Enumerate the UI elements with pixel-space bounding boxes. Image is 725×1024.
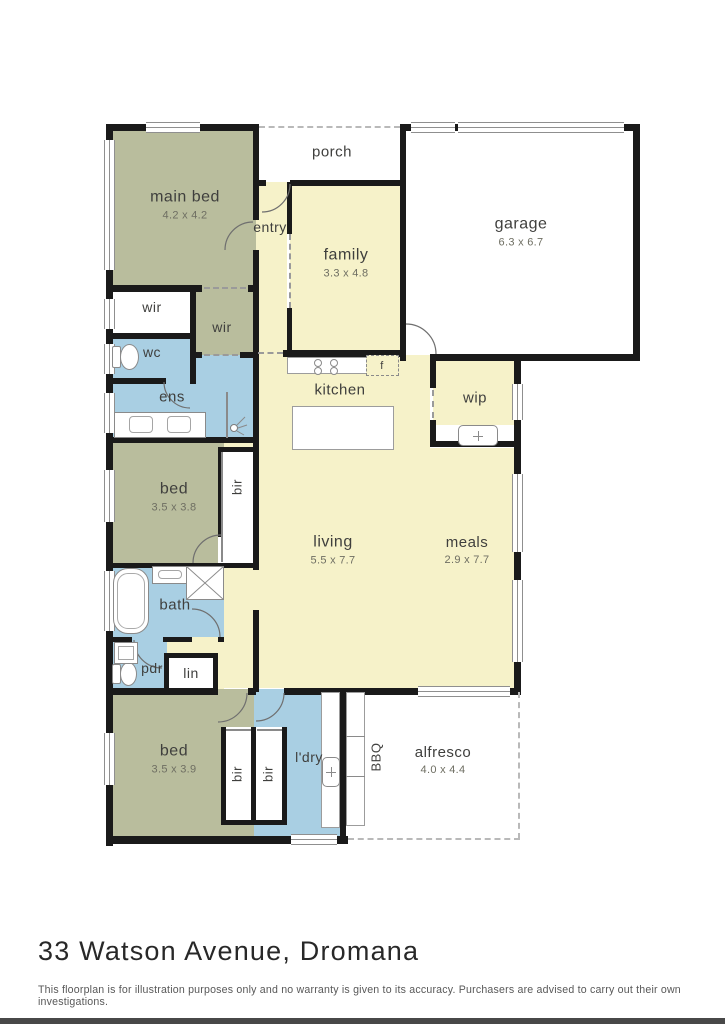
window: [291, 834, 337, 845]
fixture-line: [346, 736, 365, 737]
room-name: wir: [212, 318, 231, 336]
room-label: meals2.9 x 7.7: [445, 533, 490, 567]
fixture-burner: [330, 367, 338, 375]
room-label: bed3.5 x 3.8: [152, 479, 197, 514]
wall: [514, 452, 521, 474]
room-label: f: [380, 359, 384, 373]
fixture-island: [292, 406, 394, 450]
wall: [253, 124, 259, 220]
room-label: bath: [159, 595, 190, 615]
opening-dash: [259, 126, 400, 128]
room-label: BBQ: [369, 743, 386, 772]
room-name: family: [324, 245, 369, 266]
room-name: ens: [159, 387, 185, 407]
room-label: lin: [183, 664, 199, 682]
room-label: main bed4.2 x 4.2: [150, 187, 220, 222]
room-label: wir: [142, 298, 161, 316]
room-name: wc: [143, 343, 161, 361]
door-arc: [218, 693, 247, 722]
room-name: living: [311, 532, 356, 553]
wall: [514, 420, 521, 454]
door-arc: [225, 222, 253, 250]
room-name: bir: [230, 766, 247, 782]
room-label: wip: [463, 388, 487, 408]
room-dimensions: 4.0 x 4.4: [415, 763, 472, 777]
room-name: BBQ: [369, 743, 386, 772]
room-name: wir: [142, 298, 161, 316]
window: [104, 733, 115, 785]
room-label: bir: [230, 766, 247, 782]
room-dimensions: 5.5 x 7.7: [311, 553, 356, 567]
room-bir-mid: [218, 447, 256, 565]
fixture-vanity: [114, 412, 206, 438]
room-label: wir: [212, 318, 231, 336]
room-label: wc: [143, 343, 161, 361]
opening-dash: [348, 838, 520, 840]
fixture-toilet-bowl: [120, 662, 137, 686]
fixture-line: [257, 729, 282, 731]
bottom-bar: [0, 1018, 725, 1024]
fixture-toilet-bowl: [120, 344, 139, 370]
room-name: bed: [152, 479, 197, 500]
room-label: family3.3 x 4.8: [324, 245, 369, 280]
door-arc: [192, 609, 220, 637]
door-arc: [262, 184, 290, 212]
fixture-burner: [330, 359, 338, 367]
wall: [253, 292, 259, 442]
room-name: entry: [253, 218, 287, 236]
room-name: bed: [152, 741, 197, 762]
wall: [253, 610, 259, 692]
wall: [253, 437, 259, 570]
window: [418, 686, 510, 697]
fixture-shower-x: [186, 566, 224, 600]
room-dimensions: 3.5 x 3.8: [152, 500, 197, 514]
fixture-tub-plus-v: [331, 767, 332, 777]
door-arc: [193, 535, 221, 563]
wall: [164, 653, 169, 691]
room-name: meals: [445, 533, 490, 553]
wall: [514, 354, 521, 384]
room-name: alfresco: [415, 743, 472, 763]
window: [512, 384, 523, 420]
wall: [221, 820, 287, 825]
window: [512, 474, 523, 552]
wall: [106, 378, 166, 384]
room-label: kitchen: [314, 380, 365, 400]
room-name: f: [380, 359, 384, 373]
fixture-counter: [346, 692, 365, 826]
room-label: garage6.3 x 6.7: [495, 214, 548, 249]
room-name: bir: [230, 479, 247, 495]
room-label: bir: [230, 479, 247, 495]
floorplan-canvas: main bed4.2 x 4.2porchentryfamily3.3 x 4…: [0, 0, 725, 1024]
room-label: alfresco4.0 x 4.4: [415, 743, 472, 777]
window: [104, 299, 115, 329]
room-dimensions: 6.3 x 6.7: [495, 235, 548, 249]
room-name: main bed: [150, 187, 220, 208]
opening-dash: [289, 234, 291, 308]
room-name: garage: [495, 214, 548, 235]
room-label: bed3.5 x 3.9: [152, 741, 197, 776]
floorplan-page: main bed4.2 x 4.2porchentryfamily3.3 x 4…: [0, 0, 725, 1024]
room-name: l'dry: [295, 748, 323, 766]
room-label: l'dry: [295, 748, 323, 766]
door-arc: [256, 693, 284, 721]
wall: [221, 727, 226, 825]
fixture-basin: [167, 416, 191, 433]
wall: [106, 285, 202, 292]
fixture-tub-inner: [117, 573, 145, 629]
door-arc: [406, 324, 436, 354]
fixture-line: [346, 776, 365, 777]
room-name: porch: [312, 142, 352, 162]
room-label: porch: [312, 142, 352, 162]
wall: [514, 552, 521, 580]
wall: [163, 637, 192, 642]
window: [512, 580, 523, 662]
wall: [218, 447, 256, 452]
wall: [287, 308, 292, 355]
room-name: lin: [183, 664, 199, 682]
room-label: pdr: [141, 659, 163, 677]
wall: [213, 653, 218, 691]
room-dimensions: 3.5 x 3.9: [152, 762, 197, 776]
wall: [248, 285, 259, 292]
window: [458, 122, 624, 133]
fixture-showerhead: [228, 416, 248, 436]
opening-dash: [518, 692, 520, 839]
room-label: ens: [159, 387, 185, 407]
wall: [218, 637, 224, 642]
window: [104, 140, 115, 270]
window: [411, 122, 455, 133]
fixture-burner: [314, 367, 322, 375]
opening-dash: [204, 354, 238, 356]
room-label: living5.5 x 7.7: [311, 532, 356, 567]
room-kitchen-living: [256, 355, 430, 688]
wall: [248, 688, 256, 695]
opening-dash: [432, 390, 434, 418]
fixture-sink-inner: [118, 646, 134, 660]
room-dimensions: 4.2 x 4.2: [150, 208, 220, 222]
wall: [436, 354, 640, 361]
room-dimensions: 3.3 x 4.8: [324, 266, 369, 280]
wall: [282, 727, 287, 825]
window: [104, 470, 115, 522]
fixture-burner: [314, 359, 322, 367]
room-label: entry: [253, 218, 287, 236]
opening-dash: [204, 287, 246, 289]
wall: [190, 352, 202, 358]
fixture-line: [226, 729, 251, 731]
wall: [106, 688, 218, 695]
wall: [430, 354, 436, 388]
fixture-line: [221, 452, 223, 562]
room-meals: [430, 448, 514, 688]
wall: [633, 124, 640, 361]
wall: [290, 180, 403, 186]
fixture-basin: [158, 570, 182, 579]
window: [146, 122, 200, 133]
property-address: 33 Watson Avenue, Dromana: [38, 936, 419, 967]
room-name: pdr: [141, 659, 163, 677]
disclaimer-text: This floorplan is for illustration purpo…: [38, 984, 725, 1008]
opening-dash: [258, 352, 283, 354]
room-name: bir: [261, 766, 278, 782]
wall: [251, 727, 256, 825]
room-dimensions: 2.9 x 7.7: [445, 553, 490, 567]
room-name: bath: [159, 595, 190, 615]
room-name: kitchen: [314, 380, 365, 400]
wall: [164, 653, 218, 658]
room-label: bir: [261, 766, 278, 782]
wall: [106, 333, 196, 339]
fixture-tub-plus-v: [478, 431, 479, 441]
fixture-basin: [129, 416, 153, 433]
room-name: wip: [463, 388, 487, 408]
